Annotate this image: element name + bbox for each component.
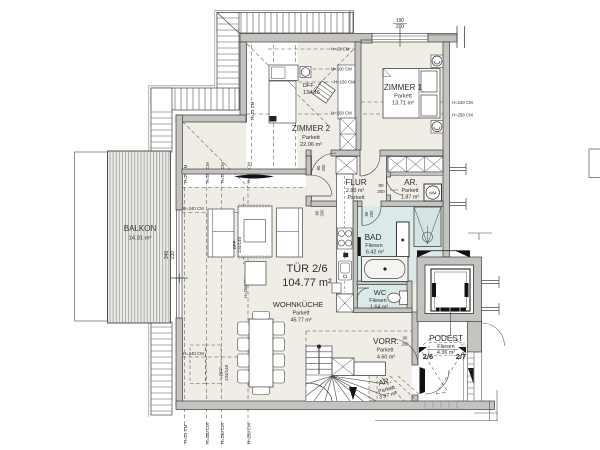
- svg-text:VORR.: VORR.: [373, 337, 399, 346]
- svg-text:Parkett: Parkett: [376, 348, 394, 354]
- svg-text:2/7: 2/7: [456, 352, 466, 361]
- svg-text:Parkett: Parkett: [292, 311, 310, 317]
- svg-text:2/6: 2/6: [423, 352, 433, 361]
- svg-text:13.71 m²: 13.71 m²: [392, 101, 414, 107]
- svg-text:H=150 CM: H=150 CM: [334, 80, 355, 85]
- svg-text:134/140: 134/140: [237, 236, 242, 253]
- svg-text:H=100 CM: H=100 CM: [331, 67, 352, 72]
- svg-text:H=240 CM: H=240 CM: [183, 206, 204, 211]
- svg-text:6.42 m²: 6.42 m²: [366, 250, 384, 256]
- svg-text:PODEST: PODEST: [429, 334, 463, 343]
- svg-text:TÜR 2/6: TÜR 2/6: [287, 263, 328, 275]
- svg-text:Parkett: Parkett: [302, 135, 320, 141]
- svg-text:Fliesen: Fliesen: [365, 243, 382, 249]
- svg-text:4.36 m²: 4.36 m²: [437, 350, 455, 356]
- svg-text:4.60 m²: 4.60 m²: [377, 355, 395, 361]
- svg-text:WOHNKÜCHE: WOHNKÜCHE: [273, 300, 324, 309]
- svg-text:104.77 m²: 104.77 m²: [282, 277, 332, 289]
- svg-text:H=100 CM: H=100 CM: [205, 423, 210, 444]
- svg-text:H=150 CM: H=150 CM: [220, 423, 225, 444]
- svg-text:H=240 CM: H=240 CM: [183, 351, 204, 356]
- svg-text:ZIMMER 2: ZIMMER 2: [292, 124, 331, 133]
- svg-text:BAD: BAD: [365, 233, 382, 242]
- svg-text:AR.: AR.: [404, 178, 418, 187]
- svg-text:200: 200: [369, 210, 374, 218]
- svg-text:H=258 CM: H=258 CM: [452, 113, 473, 118]
- svg-text:1.64 m²: 1.64 m²: [370, 305, 388, 311]
- svg-text:ZIMMER 1: ZIMMER 1: [384, 83, 423, 92]
- svg-text:Parkett: Parkett: [401, 188, 419, 194]
- svg-text:BALKON: BALKON: [124, 224, 157, 233]
- svg-text:FLUR: FLUR: [345, 178, 366, 187]
- svg-text:200: 200: [320, 209, 325, 217]
- svg-text:H=23 CM: H=23 CM: [250, 101, 255, 120]
- svg-text:90: 90: [403, 336, 408, 341]
- svg-text:H=258 CM: H=258 CM: [247, 423, 252, 444]
- svg-text:Parkett: Parkett: [347, 195, 365, 201]
- svg-text:H=258 CM: H=258 CM: [331, 111, 352, 116]
- svg-text:45.77 m²: 45.77 m²: [290, 318, 311, 324]
- svg-text:Parkett: Parkett: [394, 94, 412, 100]
- svg-text:H=23 CM: H=23 CM: [183, 424, 188, 443]
- svg-text:DFF: DFF: [219, 367, 224, 376]
- svg-text:WC: WC: [374, 288, 387, 297]
- svg-text:14.31 m²: 14.31 m²: [129, 236, 152, 242]
- svg-text:134/140: 134/140: [224, 364, 229, 381]
- svg-text:134/16: 134/16: [303, 90, 320, 96]
- svg-text:200: 200: [396, 24, 405, 30]
- svg-text:WM: WM: [429, 191, 437, 196]
- svg-text:H=240 CM: H=240 CM: [452, 100, 473, 105]
- svg-text:22.06 m²: 22.06 m²: [300, 142, 322, 148]
- svg-text:80: 80: [378, 183, 384, 188]
- svg-text:DFF: DFF: [303, 83, 314, 89]
- svg-text:230: 230: [170, 251, 176, 260]
- svg-text:200: 200: [321, 164, 326, 172]
- svg-text:1.87 m²: 1.87 m²: [401, 195, 419, 201]
- svg-text:H=23 CM: H=23 CM: [331, 47, 350, 52]
- svg-text:200: 200: [377, 189, 385, 194]
- svg-text:200: 200: [402, 342, 410, 347]
- svg-text:2.80 m²: 2.80 m²: [346, 188, 364, 194]
- svg-text:Fliesen: Fliesen: [369, 298, 386, 304]
